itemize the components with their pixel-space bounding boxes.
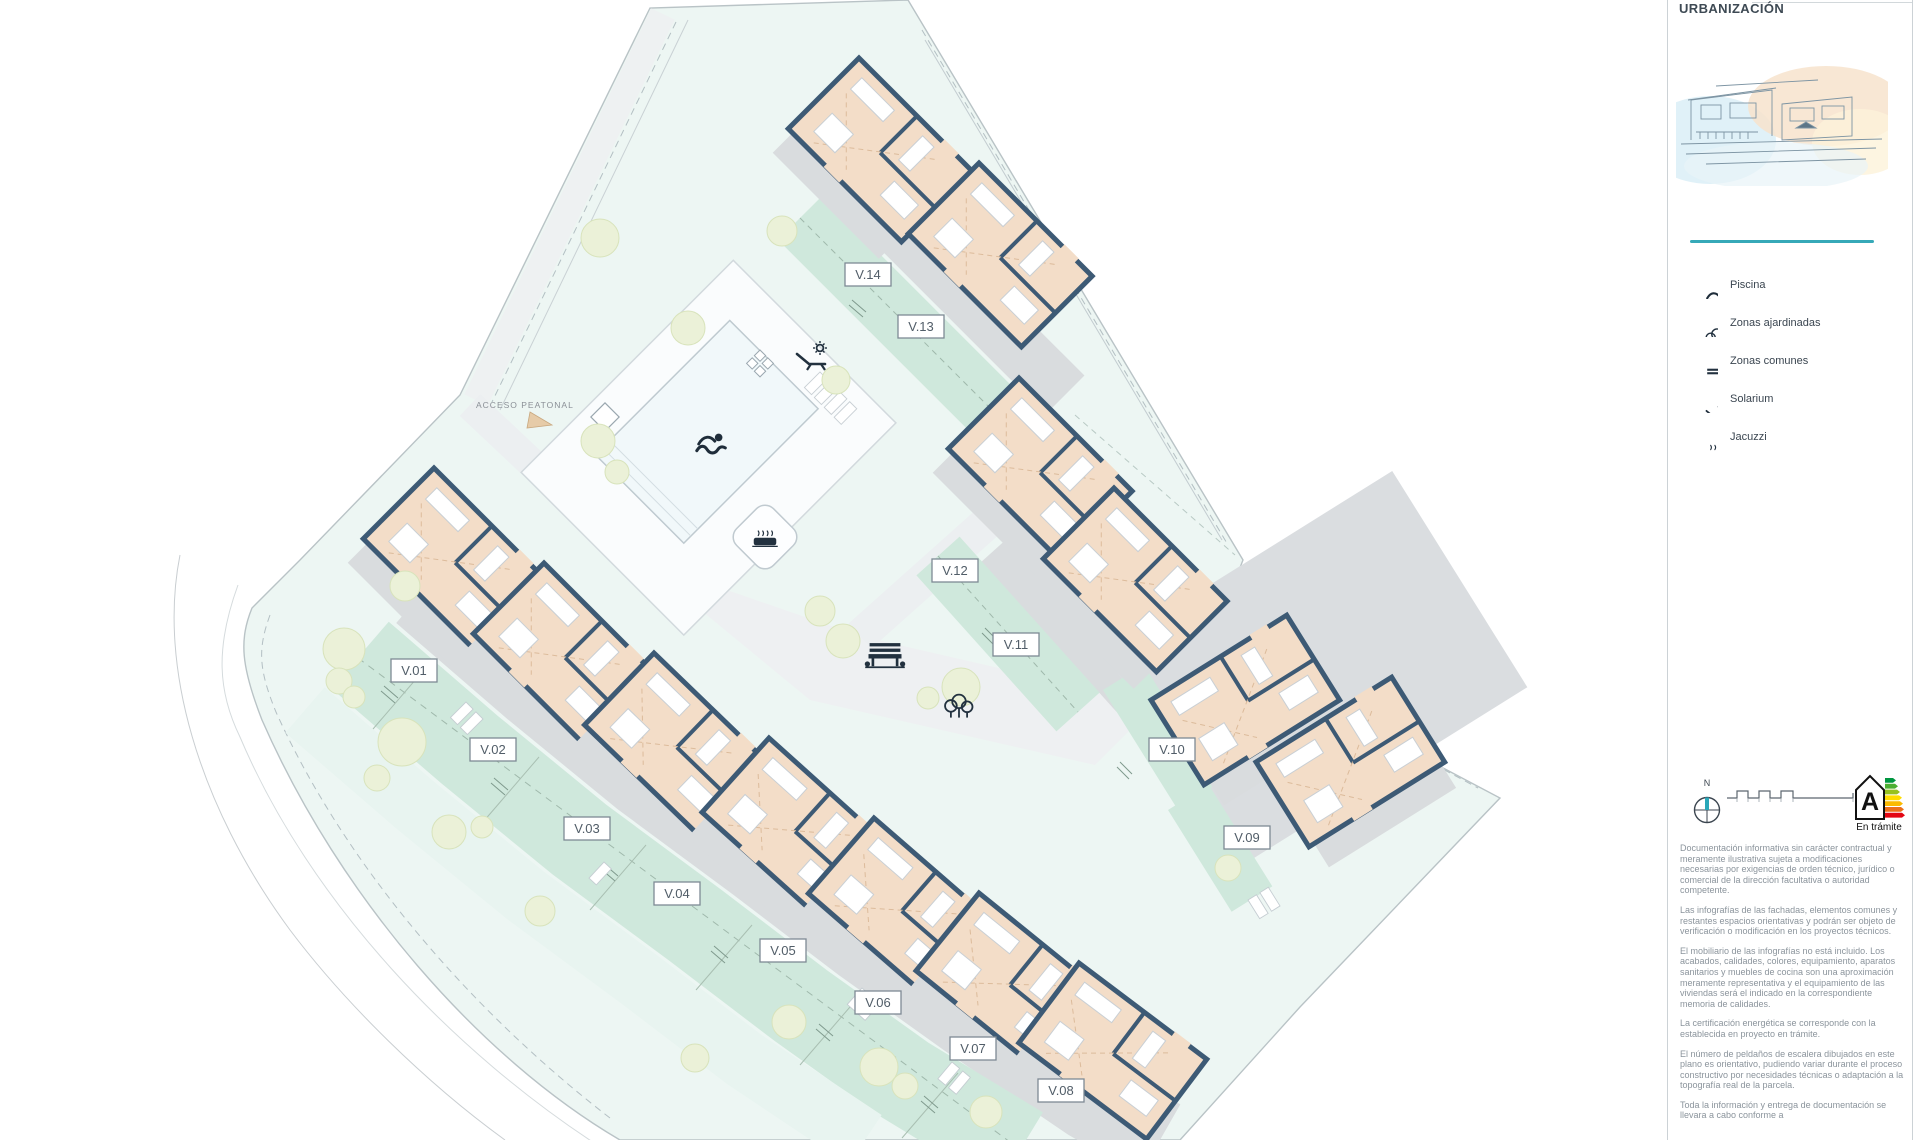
plot-label: V.11 xyxy=(993,633,1039,656)
legend-item-solarium: Solarium xyxy=(1688,380,1888,418)
site-plan: ACCESO PEATONAL V.01 V.02 V.03 V.04 V.05… xyxy=(0,0,1667,1140)
swimmer-icon xyxy=(1688,271,1718,299)
svg-text:V.13: V.13 xyxy=(908,319,934,334)
svg-text:V.08: V.08 xyxy=(1048,1083,1074,1098)
svg-text:V.09: V.09 xyxy=(1234,830,1260,845)
legend-label: Piscina xyxy=(1730,279,1765,291)
svg-text:V.03: V.03 xyxy=(574,821,600,836)
svg-text:V.14: V.14 xyxy=(855,267,881,282)
svg-text:V.05: V.05 xyxy=(770,943,796,958)
trees-icon xyxy=(1688,309,1718,337)
north-label: N xyxy=(1704,778,1711,788)
plot-label: V.13 xyxy=(898,315,944,338)
plot-label: V.01 xyxy=(391,659,437,682)
page-title: URBANIZACIÓN xyxy=(1679,1,1784,16)
energy-rating-icon: A xyxy=(1854,773,1906,823)
sun-lounger-icon xyxy=(1688,385,1718,413)
legend-item-piscina: Piscina xyxy=(1688,266,1888,304)
legend-label: Zonas comunes xyxy=(1730,355,1808,367)
bench-icon xyxy=(1688,347,1718,375)
plot-label: V.07 xyxy=(950,1037,996,1060)
plot-label: V.03 xyxy=(564,817,610,840)
svg-text:V.04: V.04 xyxy=(664,886,690,901)
legend-label: Solarium xyxy=(1730,393,1773,405)
legend: Piscina Zonas ajardinadas Zonas comunes … xyxy=(1688,266,1888,456)
accent-divider xyxy=(1690,240,1874,243)
disclaimer-paragraph: El número de peldaños de escalera dibuja… xyxy=(1680,1049,1908,1091)
energy-scale-bars xyxy=(1885,778,1905,818)
svg-text:V.07: V.07 xyxy=(960,1041,986,1056)
svg-text:V.11: V.11 xyxy=(1004,637,1029,652)
svg-text:V.10: V.10 xyxy=(1159,742,1185,757)
compass-needle xyxy=(1705,798,1709,811)
plot-label: V.05 xyxy=(760,939,806,962)
plot-label: V.06 xyxy=(855,991,901,1014)
access-text: ACCESO PEATONAL xyxy=(476,400,574,410)
plot-label: V.04 xyxy=(654,882,700,905)
energy-status: En trámite xyxy=(1846,822,1912,833)
disclaimer-paragraph: Toda la información y entrega de documen… xyxy=(1680,1100,1908,1121)
info-panel: URBANIZACIÓN xyxy=(1667,0,1913,1140)
legend-item-jacuzzi: Jacuzzi xyxy=(1688,418,1888,456)
plot-label: V.02 xyxy=(470,738,516,761)
svg-text:V.06: V.06 xyxy=(865,995,891,1010)
energy-letter: A xyxy=(1861,788,1879,816)
north-compass: N xyxy=(1688,776,1726,832)
plot-label: V.14 xyxy=(845,263,891,286)
disclaimer-paragraph: El mobiliario de las infografías no está… xyxy=(1680,946,1908,1010)
svg-text:V.12: V.12 xyxy=(942,563,968,578)
plot-label: V.12 xyxy=(932,559,978,582)
legend-item-zonas-comunes: Zonas comunes xyxy=(1688,342,1888,380)
plot-label: V.09 xyxy=(1224,826,1270,849)
disclaimer-paragraph: Documentación informativa sin carácter c… xyxy=(1680,843,1908,896)
scale-bar xyxy=(1726,786,1858,810)
svg-text:V.01: V.01 xyxy=(401,663,427,678)
facade-sketch xyxy=(1676,44,1888,186)
svg-text:V.02: V.02 xyxy=(480,742,506,757)
disclaimer-paragraph: La certificación energética se correspon… xyxy=(1680,1018,1908,1039)
legend-label: Jacuzzi xyxy=(1730,431,1767,443)
plan-sheet: ACCESO PEATONAL V.01 V.02 V.03 V.04 V.05… xyxy=(0,0,1920,1140)
plot-label: V.08 xyxy=(1038,1079,1084,1102)
jacuzzi-icon xyxy=(1688,423,1718,451)
legend-label: Zonas ajardinadas xyxy=(1730,317,1821,329)
disclaimer-block: Documentación informativa sin carácter c… xyxy=(1680,843,1908,1130)
plot-label: V.10 xyxy=(1149,738,1195,761)
disclaimer-paragraph: Las infografías de las fachadas, element… xyxy=(1680,905,1908,937)
legend-item-zonas-ajardinadas: Zonas ajardinadas xyxy=(1688,304,1888,342)
